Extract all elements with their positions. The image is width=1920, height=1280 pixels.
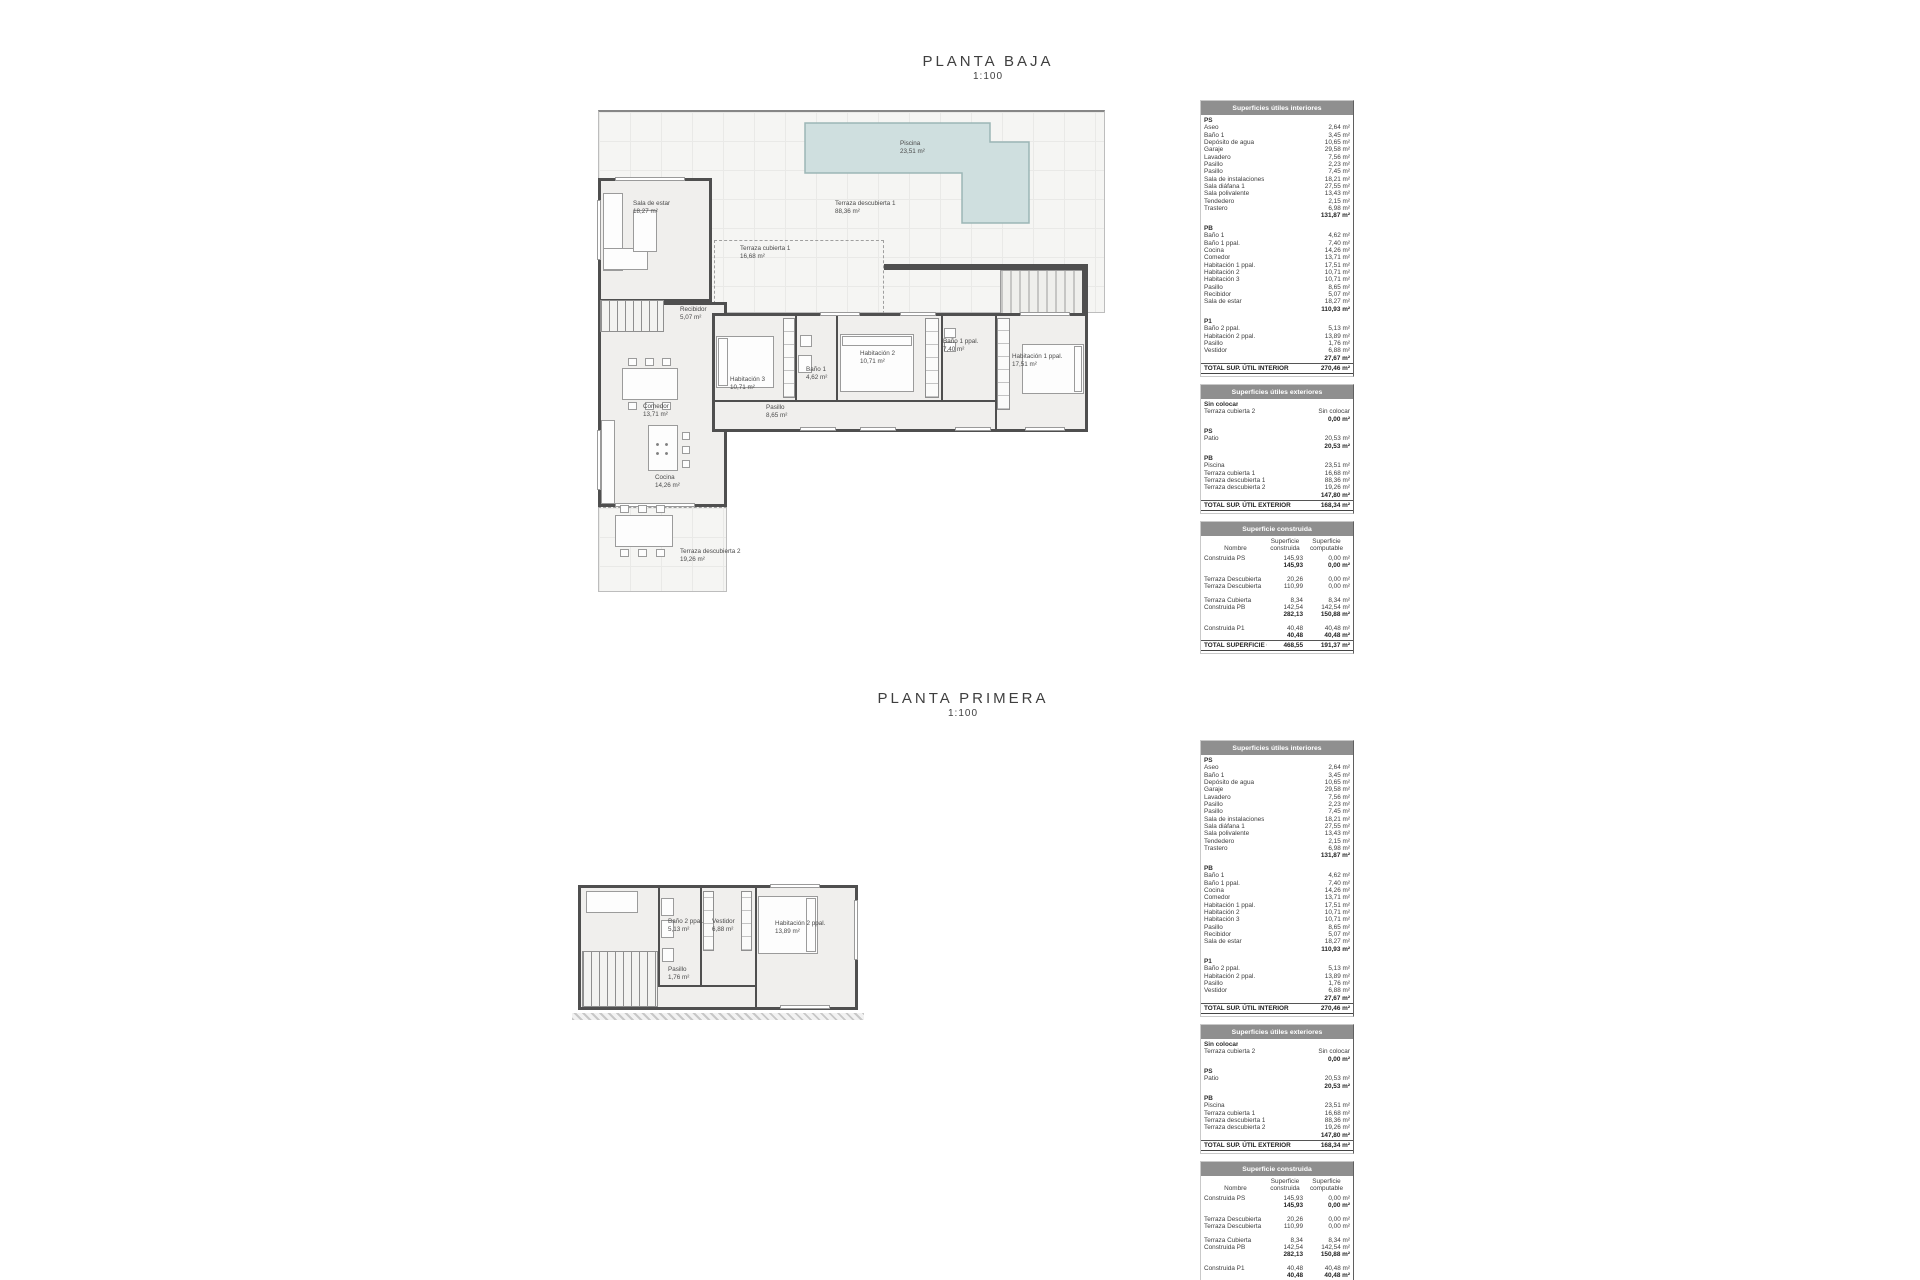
table-interior-title: Superficies útiles interiores (1201, 741, 1353, 755)
group-name: P1 (1204, 958, 1212, 965)
room-area: 16,68 m² (740, 253, 790, 261)
subtotal-value: 147,80 m² (1321, 1132, 1350, 1139)
table-interior: Superficies útiles interioresPSAseo2,64 … (1200, 100, 1354, 377)
table-group-label: PB (1201, 455, 1353, 462)
table-row: Terraza Descubierta20,260,00 m² (1201, 576, 1353, 583)
table-group-label: PB (1201, 225, 1353, 232)
row-name: Baño 1 (1204, 772, 1224, 779)
table-construida-colheaders: NombreSuperficie construidaSuperficie co… (1201, 1176, 1353, 1195)
total-construida: 468,55 (1267, 641, 1303, 650)
row-name (1204, 562, 1267, 569)
row-construida: 40,48 (1267, 625, 1303, 632)
table-subtotal-row: 145,930,00 m² (1201, 562, 1353, 569)
row-value: 10,65 m² (1325, 779, 1350, 786)
row-name: Habitación 3 (1204, 276, 1240, 283)
table-row: Patio20,53 m² (1201, 1075, 1353, 1082)
table-interior-body: PSAseo2,64 m²Baño 13,45 m²Depósito de ag… (1201, 115, 1353, 374)
table-exterior: Superficies útiles exterioresSin colocar… (1200, 1024, 1354, 1154)
chair (628, 402, 637, 410)
row-construida: 8,34 (1267, 597, 1303, 604)
row-value: 5,07 m² (1328, 291, 1350, 298)
group-name: PB (1204, 455, 1213, 462)
total-label: TOTAL SUP. ÚTIL EXTERIOR (1204, 501, 1291, 510)
table-row: Sala de estar18,27 m² (1201, 298, 1353, 305)
planta-baja-title-block: PLANTA BAJA 1:100 (888, 53, 1088, 82)
table-exterior-body: Sin colocarTerraza cubierta 2Sin colocar… (1201, 399, 1353, 511)
row-value: 2,64 m² (1328, 124, 1350, 131)
table-construida-title: Superficie construida (1201, 522, 1353, 536)
row-name: Sala de estar (1204, 938, 1242, 945)
row-value: 7,45 m² (1328, 808, 1350, 815)
row-construida: 110,99 (1267, 583, 1303, 590)
row-name: Terraza Descubierta (1204, 583, 1267, 590)
group-name: Sin colocar (1204, 401, 1238, 408)
table-subtotal-row: 110,93 m² (1201, 946, 1353, 953)
room-area: 19,26 m² (680, 556, 741, 564)
wall (836, 316, 838, 400)
bath-fixture (944, 328, 956, 338)
row-value: 7,56 m² (1328, 154, 1350, 161)
table-subtotal-row: 131,87 m² (1201, 212, 1353, 219)
row-name: Terraza cubierta 2 (1204, 408, 1255, 415)
row-name: Vestidor (1204, 347, 1227, 354)
table-row: Piscina23,51 m² (1201, 462, 1353, 469)
table-group-label: P1 (1201, 318, 1353, 325)
row-name: Construida P1 (1204, 625, 1267, 632)
chair (656, 505, 665, 513)
row-name: Terraza descubierta 1 (1204, 477, 1265, 484)
subtotal-computable: 40,48 m² (1303, 632, 1350, 639)
stool (682, 460, 690, 468)
wall (755, 888, 757, 1008)
row-name: Tendedero (1204, 198, 1234, 205)
table-row: Garaje29,58 m² (1201, 146, 1353, 153)
colheader-nombre: Nombre (1204, 1185, 1267, 1192)
table-row: Baño 14,62 m² (1201, 872, 1353, 879)
row-construida: 20,26 (1267, 576, 1303, 583)
wall (941, 316, 943, 400)
row-construida: 110,99 (1267, 1223, 1303, 1230)
room-area: 6,88 m² (712, 926, 735, 934)
row-value: 19,26 m² (1325, 1124, 1350, 1131)
room-area: 1,76 m² (668, 974, 689, 982)
row-name: Pasillo (1204, 168, 1223, 175)
closet (997, 318, 1010, 410)
room-name: Baño 1 ppal. (943, 338, 978, 346)
table-subtotal-row: 282,13150,88 m² (1201, 1251, 1353, 1258)
row-value: 1,76 m² (1328, 980, 1350, 987)
room-label-pasillo-p1: Pasillo 1,76 m² (668, 966, 689, 981)
table-row: Lavadero7,56 m² (1201, 154, 1353, 161)
table-exterior-title: Superficies útiles exteriores (1201, 385, 1353, 399)
row-name: Sala polivalente (1204, 190, 1249, 197)
row-value: 10,71 m² (1325, 909, 1350, 916)
room-name: Terraza descubierta 1 (835, 200, 896, 208)
row-name: Pasillo (1204, 808, 1223, 815)
row-construida: 142,54 (1267, 1244, 1303, 1251)
closet (741, 891, 752, 951)
row-construida: 145,93 (1267, 555, 1303, 562)
row-value: 13,89 m² (1325, 333, 1350, 340)
room-name: Baño 1 (806, 366, 827, 374)
window (1025, 427, 1065, 431)
row-name: Construida PB (1204, 604, 1267, 611)
row-name: Construida P1 (1204, 1265, 1267, 1272)
table-row: Tendedero2,15 m² (1201, 838, 1353, 845)
table-row: Terraza descubierta 188,36 m² (1201, 477, 1353, 484)
table-row: Sala diáfana 127,55 m² (1201, 183, 1353, 190)
row-value: 2,15 m² (1328, 198, 1350, 205)
room-name: Terraza cubierta 1 (740, 245, 790, 253)
row-value: 5,07 m² (1328, 931, 1350, 938)
total-value: 270,46 m² (1321, 1004, 1350, 1013)
group-name: PB (1204, 1095, 1213, 1102)
bed-pillow (718, 338, 728, 386)
row-value: 14,26 m² (1325, 887, 1350, 894)
row-name (1204, 1251, 1267, 1258)
table-exterior-body: Sin colocarTerraza cubierta 2Sin colocar… (1201, 1039, 1353, 1151)
total-value: 168,34 m² (1321, 501, 1350, 510)
room-area: 17,51 m² (1012, 361, 1062, 369)
row-name: Sala polivalente (1204, 830, 1249, 837)
table-group-label: PS (1201, 1068, 1353, 1075)
row-name: Patio (1204, 435, 1219, 442)
table-group-label: PB (1201, 1095, 1353, 1102)
chair (638, 549, 647, 557)
colheader-construida: Superficie construida (1267, 1178, 1303, 1192)
window (820, 312, 860, 316)
row-value: 27,55 m² (1325, 823, 1350, 830)
table-row: Terraza cubierta 2Sin colocar (1201, 408, 1353, 415)
subtotal-value: 131,87 m² (1321, 212, 1350, 219)
row-value: 5,13 m² (1328, 965, 1350, 972)
row-name: Sala de instalaciones (1204, 816, 1264, 823)
row-value: 18,21 m² (1325, 816, 1350, 823)
row-name: Habitación 1 ppal. (1204, 262, 1255, 269)
row-value: Sin colocar (1318, 1048, 1350, 1055)
row-value: 18,27 m² (1325, 298, 1350, 305)
table-row: Terraza Descubierta110,990,00 m² (1201, 583, 1353, 590)
total-label: TOTAL SUP. ÚTIL EXTERIOR (1204, 1141, 1291, 1150)
row-name: Terraza Cubierta (1204, 597, 1267, 604)
row-computable: 8,34 m² (1303, 1237, 1350, 1244)
row-name: Habitación 1 ppal. (1204, 902, 1255, 909)
row-name: Pasillo (1204, 980, 1223, 987)
row-value: 8,65 m² (1328, 284, 1350, 291)
bed-pillow (1074, 346, 1082, 392)
row-computable: 40,48 m² (1303, 1265, 1350, 1272)
table-row: Vestidor6,88 m² (1201, 347, 1353, 354)
table-row: Terraza cubierta 116,68 m² (1201, 1110, 1353, 1117)
room-name: Cocina (655, 474, 680, 482)
room-area: 5,13 m² (668, 926, 703, 934)
row-value: 13,89 m² (1325, 973, 1350, 980)
closet (925, 318, 939, 398)
row-value: 10,71 m² (1325, 276, 1350, 283)
table-group-label: Sin colocar (1201, 401, 1353, 408)
planta-baja-scale: 1:100 (888, 71, 1088, 82)
table-row: Baño 13,45 m² (1201, 772, 1353, 779)
row-name: Baño 2 ppal. (1204, 325, 1240, 332)
chair (662, 358, 671, 366)
row-name: Pasillo (1204, 801, 1223, 808)
room-area: 23,51 m² (900, 148, 925, 156)
room-area: 18,27 m² (633, 208, 670, 216)
row-name: Trastero (1204, 845, 1228, 852)
room-label-habitacion-2: Habitación 2 10,71 m² (860, 350, 895, 365)
table-group-label: PS (1201, 428, 1353, 435)
bed-pillow (842, 336, 912, 346)
window (800, 427, 836, 431)
row-computable: 142,54 m² (1303, 1244, 1350, 1251)
table-row: Sala de estar18,27 m² (1201, 938, 1353, 945)
row-name: Terraza Descubierta (1204, 576, 1267, 583)
row-value: 17,51 m² (1325, 262, 1350, 269)
subtotal-construida: 40,48 (1267, 632, 1303, 639)
table-interior-total: TOTAL SUP. ÚTIL INTERIOR270,46 m² (1201, 363, 1353, 374)
room-name: Baño 2 ppal. (668, 918, 703, 926)
room-label-vestidor: Vestidor 6,88 m² (712, 918, 735, 933)
row-name: Baño 1 ppal. (1204, 240, 1240, 247)
row-value: 27,55 m² (1325, 183, 1350, 190)
subtotal-construida: 282,13 (1267, 611, 1303, 618)
table-row: Sala diáfana 127,55 m² (1201, 823, 1353, 830)
table-row: Habitación 210,71 m² (1201, 269, 1353, 276)
row-value: 29,58 m² (1325, 146, 1350, 153)
subtotal-computable: 150,88 m² (1303, 1251, 1350, 1258)
row-value: 13,71 m² (1325, 254, 1350, 261)
table-row: Pasillo7,45 m² (1201, 168, 1353, 175)
subtotal-computable: 0,00 m² (1303, 562, 1350, 569)
row-value: 2,15 m² (1328, 838, 1350, 845)
chair (628, 358, 637, 366)
cooktop (653, 440, 671, 458)
table-interior-body: PSAseo2,64 m²Baño 13,45 m²Depósito de ag… (1201, 755, 1353, 1014)
ground-hatch (572, 1013, 864, 1020)
row-value: 5,13 m² (1328, 325, 1350, 332)
drawing-sheet: PLANTA BAJA 1:100 (0, 0, 1920, 1280)
row-value: 16,68 m² (1325, 1110, 1350, 1117)
table-interior-title: Superficies útiles interiores (1201, 101, 1353, 115)
row-name: Depósito de agua (1204, 139, 1254, 146)
room-label-terraza-descubierta-2: Terraza descubierta 2 19,26 m² (680, 548, 741, 563)
group-name: PB (1204, 865, 1213, 872)
row-name: Baño 2 ppal. (1204, 965, 1240, 972)
row-value: 16,68 m² (1325, 470, 1350, 477)
table-row: Terraza cubierta 116,68 m² (1201, 470, 1353, 477)
table-row: Patio20,53 m² (1201, 435, 1353, 442)
row-computable: 0,00 m² (1303, 1223, 1350, 1230)
row-value: 6,98 m² (1328, 205, 1350, 212)
row-name: Habitación 2 ppal. (1204, 973, 1255, 980)
row-name: Baño 1 (1204, 872, 1224, 879)
room-label-piscina: Piscina 23,51 m² (900, 140, 925, 155)
row-name: Garaje (1204, 786, 1223, 793)
row-value: 1,76 m² (1328, 340, 1350, 347)
table-row: Lavadero7,56 m² (1201, 794, 1353, 801)
planta-primera-title: PLANTA PRIMERA (863, 690, 1063, 707)
row-value: 2,23 m² (1328, 801, 1350, 808)
stairs (582, 951, 658, 1007)
table-group-label: PS (1201, 117, 1353, 124)
table-row: Terraza descubierta 219,26 m² (1201, 484, 1353, 491)
row-value: Sin colocar (1318, 408, 1350, 415)
row-name: Piscina (1204, 1102, 1225, 1109)
row-name: Sala de estar (1204, 298, 1242, 305)
row-name: Lavadero (1204, 794, 1231, 801)
group-name: P1 (1204, 318, 1212, 325)
table-row: Trastero6,98 m² (1201, 845, 1353, 852)
row-construida: 20,26 (1267, 1216, 1303, 1223)
total-label: TOTAL SUPERFICIE CONSTRUIDA: (1204, 641, 1267, 650)
chair (656, 549, 665, 557)
row-name: Terraza cubierta 1 (1204, 470, 1255, 477)
room-label-bano-1-ppal: Baño 1 ppal. 7,40 m² (943, 338, 978, 353)
wall (715, 400, 995, 402)
room-area: 8,65 m² (766, 412, 787, 420)
table-subtotal-row: 145,930,00 m² (1201, 1202, 1353, 1209)
row-value: 20,53 m² (1325, 1075, 1350, 1082)
table-interior-total: TOTAL SUP. ÚTIL INTERIOR270,46 m² (1201, 1003, 1353, 1014)
table-row: Cocina14,26 m² (1201, 887, 1353, 894)
row-name: Habitación 2 ppal. (1204, 333, 1255, 340)
table-row: Terraza Descubierta110,990,00 m² (1201, 1223, 1353, 1230)
table-row: Construida PS145,930,00 m² (1201, 1195, 1353, 1202)
row-computable: 40,48 m² (1303, 625, 1350, 632)
table-exterior-total: TOTAL SUP. ÚTIL EXTERIOR168,34 m² (1201, 1140, 1353, 1151)
total-computable: 191,37 m² (1303, 641, 1350, 650)
subtotal-construida: 282,13 (1267, 1251, 1303, 1258)
table-subtotal-row: 0,00 m² (1201, 416, 1353, 423)
row-value: 3,45 m² (1328, 772, 1350, 779)
table-row: Pasillo2,23 m² (1201, 161, 1353, 168)
table-row: Recibidor5,07 m² (1201, 291, 1353, 298)
bath-fixture (800, 335, 812, 347)
room-label-terraza-descubierta-1: Terraza descubierta 1 88,36 m² (835, 200, 896, 215)
row-name: Patio (1204, 1075, 1219, 1082)
subtotal-computable: 40,48 m² (1303, 1272, 1350, 1279)
row-value: 13,43 m² (1325, 830, 1350, 837)
subtotal-computable: 0,00 m² (1303, 1202, 1350, 1209)
window (854, 900, 858, 960)
group-name: Sin colocar (1204, 1041, 1238, 1048)
wall (795, 316, 797, 400)
table-row: Habitación 1 ppal.17,51 m² (1201, 262, 1353, 269)
table-subtotal-row: 282,13150,88 m² (1201, 611, 1353, 618)
row-name: Tendedero (1204, 838, 1234, 845)
table-row: Habitación 2 ppal.13,89 m² (1201, 973, 1353, 980)
table-exterior-title: Superficies útiles exteriores (1201, 1025, 1353, 1039)
row-name: Cocina (1204, 247, 1224, 254)
table-row: Baño 1 ppal.7,40 m² (1201, 240, 1353, 247)
planta-primera-scale: 1:100 (863, 708, 1063, 719)
row-value: 7,40 m² (1328, 880, 1350, 887)
room-area: 10,71 m² (860, 358, 895, 366)
total-value: 270,46 m² (1321, 364, 1350, 373)
subtotal-value: 110,93 m² (1321, 306, 1350, 313)
table-row: Terraza Cubierta8,348,34 m² (1201, 597, 1353, 604)
row-name: Construida PS (1204, 1195, 1267, 1202)
room-name: Habitación 3 (730, 376, 765, 384)
row-value: 88,36 m² (1325, 1117, 1350, 1124)
room-label-terraza-cubierta-1: Terraza cubierta 1 16,68 m² (740, 245, 790, 260)
row-value: 8,65 m² (1328, 924, 1350, 931)
row-name: Trastero (1204, 205, 1228, 212)
table-interior: Superficies útiles interioresPSAseo2,64 … (1200, 740, 1354, 1017)
row-computable: 0,00 m² (1303, 583, 1350, 590)
sofa (586, 891, 638, 913)
row-value: 14,26 m² (1325, 247, 1350, 254)
row-value: 23,51 m² (1325, 462, 1350, 469)
row-value: 20,53 m² (1325, 435, 1350, 442)
table-row: Sala de instalaciones18,21 m² (1201, 816, 1353, 823)
bath-fixture (661, 898, 674, 916)
row-name (1204, 611, 1267, 618)
subtotal-value: 131,87 m² (1321, 852, 1350, 859)
row-value: 10,71 m² (1325, 916, 1350, 923)
table-row: Cocina14,26 m² (1201, 247, 1353, 254)
table-row: Pasillo8,65 m² (1201, 284, 1353, 291)
subtotal-computable: 150,88 m² (1303, 611, 1350, 618)
row-name: Vestidor (1204, 987, 1227, 994)
chair (620, 549, 629, 557)
row-value: 23,51 m² (1325, 1102, 1350, 1109)
row-name: Baño 1 (1204, 232, 1224, 239)
row-value: 2,23 m² (1328, 161, 1350, 168)
coffee-table (633, 210, 657, 252)
table-row: Baño 2 ppal.5,13 m² (1201, 965, 1353, 972)
table-subtotal-row: 40,4840,48 m² (1201, 632, 1353, 639)
table-row: Comedor13,71 m² (1201, 894, 1353, 901)
row-name: Comedor (1204, 894, 1230, 901)
row-value: 13,43 m² (1325, 190, 1350, 197)
room-label-habitacion-2-ppal: Habitación 2 ppal. 13,89 m² (775, 920, 825, 935)
row-name: Terraza descubierta 2 (1204, 1124, 1265, 1131)
row-name: Pasillo (1204, 284, 1223, 291)
bath-fixture (662, 948, 674, 962)
table-row: Terraza cubierta 2Sin colocar (1201, 1048, 1353, 1055)
table-construida-total: TOTAL SUPERFICIE CONSTRUIDA:468,55191,37… (1201, 640, 1353, 651)
room-name: Terraza descubierta 2 (680, 548, 741, 556)
row-name: Baño 1 ppal. (1204, 880, 1240, 887)
planta-primera-title-block: PLANTA PRIMERA 1:100 (863, 690, 1063, 719)
table-row: Sala polivalente13,43 m² (1201, 190, 1353, 197)
window (780, 1005, 830, 1009)
room-label-comedor: Comedor 13,71 m² (643, 403, 669, 418)
row-name: Terraza Cubierta (1204, 1237, 1267, 1244)
row-value: 19,26 m² (1325, 484, 1350, 491)
table-subtotal-row: 27,67 m² (1201, 355, 1353, 362)
subtotal-construida: 145,93 (1267, 562, 1303, 569)
row-value: 13,71 m² (1325, 894, 1350, 901)
row-value: 7,45 m² (1328, 168, 1350, 175)
row-name: Comedor (1204, 254, 1230, 261)
row-construida: 145,93 (1267, 1195, 1303, 1202)
subtotal-value: 20,53 m² (1324, 1083, 1350, 1090)
window (1020, 312, 1070, 316)
row-name: Cocina (1204, 887, 1224, 894)
row-name: Construida PS (1204, 555, 1267, 562)
room-name: Sala de estar (633, 200, 670, 208)
row-name: Terraza cubierta 2 (1204, 1048, 1255, 1055)
subtotal-value: 27,67 m² (1324, 355, 1350, 362)
row-name (1204, 1272, 1267, 1279)
table-exterior: Superficies útiles exterioresSin colocar… (1200, 384, 1354, 514)
subtotal-value: 147,80 m² (1321, 492, 1350, 499)
row-value: 18,27 m² (1325, 938, 1350, 945)
row-value: 2,64 m² (1328, 764, 1350, 771)
row-computable: 8,34 m² (1303, 597, 1350, 604)
